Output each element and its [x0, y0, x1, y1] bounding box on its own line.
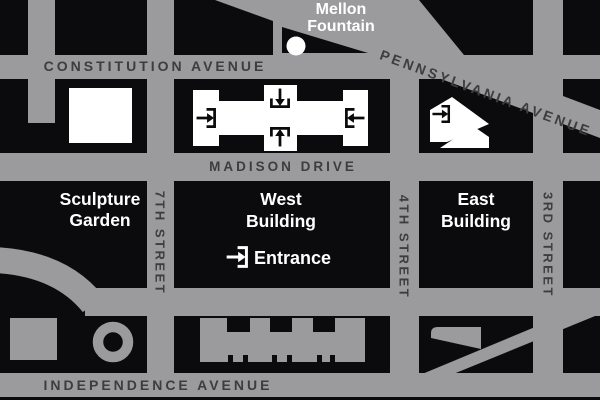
- mellon-fountain-label-line1: Mellon: [316, 1, 367, 18]
- independence-avenue-label: INDEPENDENCE AVENUE: [44, 377, 273, 393]
- sculpture-garden-label-line1: Sculpture: [60, 189, 141, 209]
- madison-drive-label: MADISON DRIVE: [209, 159, 357, 174]
- building-square-southwest: [10, 318, 57, 360]
- entrance-label: Entrance: [254, 248, 331, 268]
- building-white-square: [69, 88, 132, 143]
- sculpture-garden-label-line2: Garden: [69, 210, 130, 230]
- block-label-row-right: [563, 181, 600, 288]
- mellon-fountain-dot: [287, 37, 306, 56]
- block-northwest: [0, 0, 28, 55]
- gallery-area-map: CONSTITUTION AVENUE PENNSYLVANIA AVENUE …: [0, 0, 600, 400]
- map-canvas: CONSTITUTION AVENUE PENNSYLVANIA AVENUE …: [0, 0, 600, 400]
- seventh-street-label: 7TH STREET: [153, 191, 168, 295]
- west-building-label-line2: Building: [246, 211, 316, 231]
- block-northeast: [563, 0, 600, 55]
- west-building-label-line1: West: [260, 189, 302, 209]
- fourth-street-label: 4TH STREET: [397, 195, 412, 299]
- third-street-label: 3RD STREET: [541, 192, 556, 298]
- mellon-fountain-label-line2: Fountain: [307, 18, 375, 35]
- east-building-label-line2: Building: [441, 211, 511, 231]
- constitution-avenue-label: CONSTITUTION AVENUE: [44, 58, 267, 74]
- block-north-1: [55, 0, 147, 55]
- east-building-label-line1: East: [458, 189, 495, 209]
